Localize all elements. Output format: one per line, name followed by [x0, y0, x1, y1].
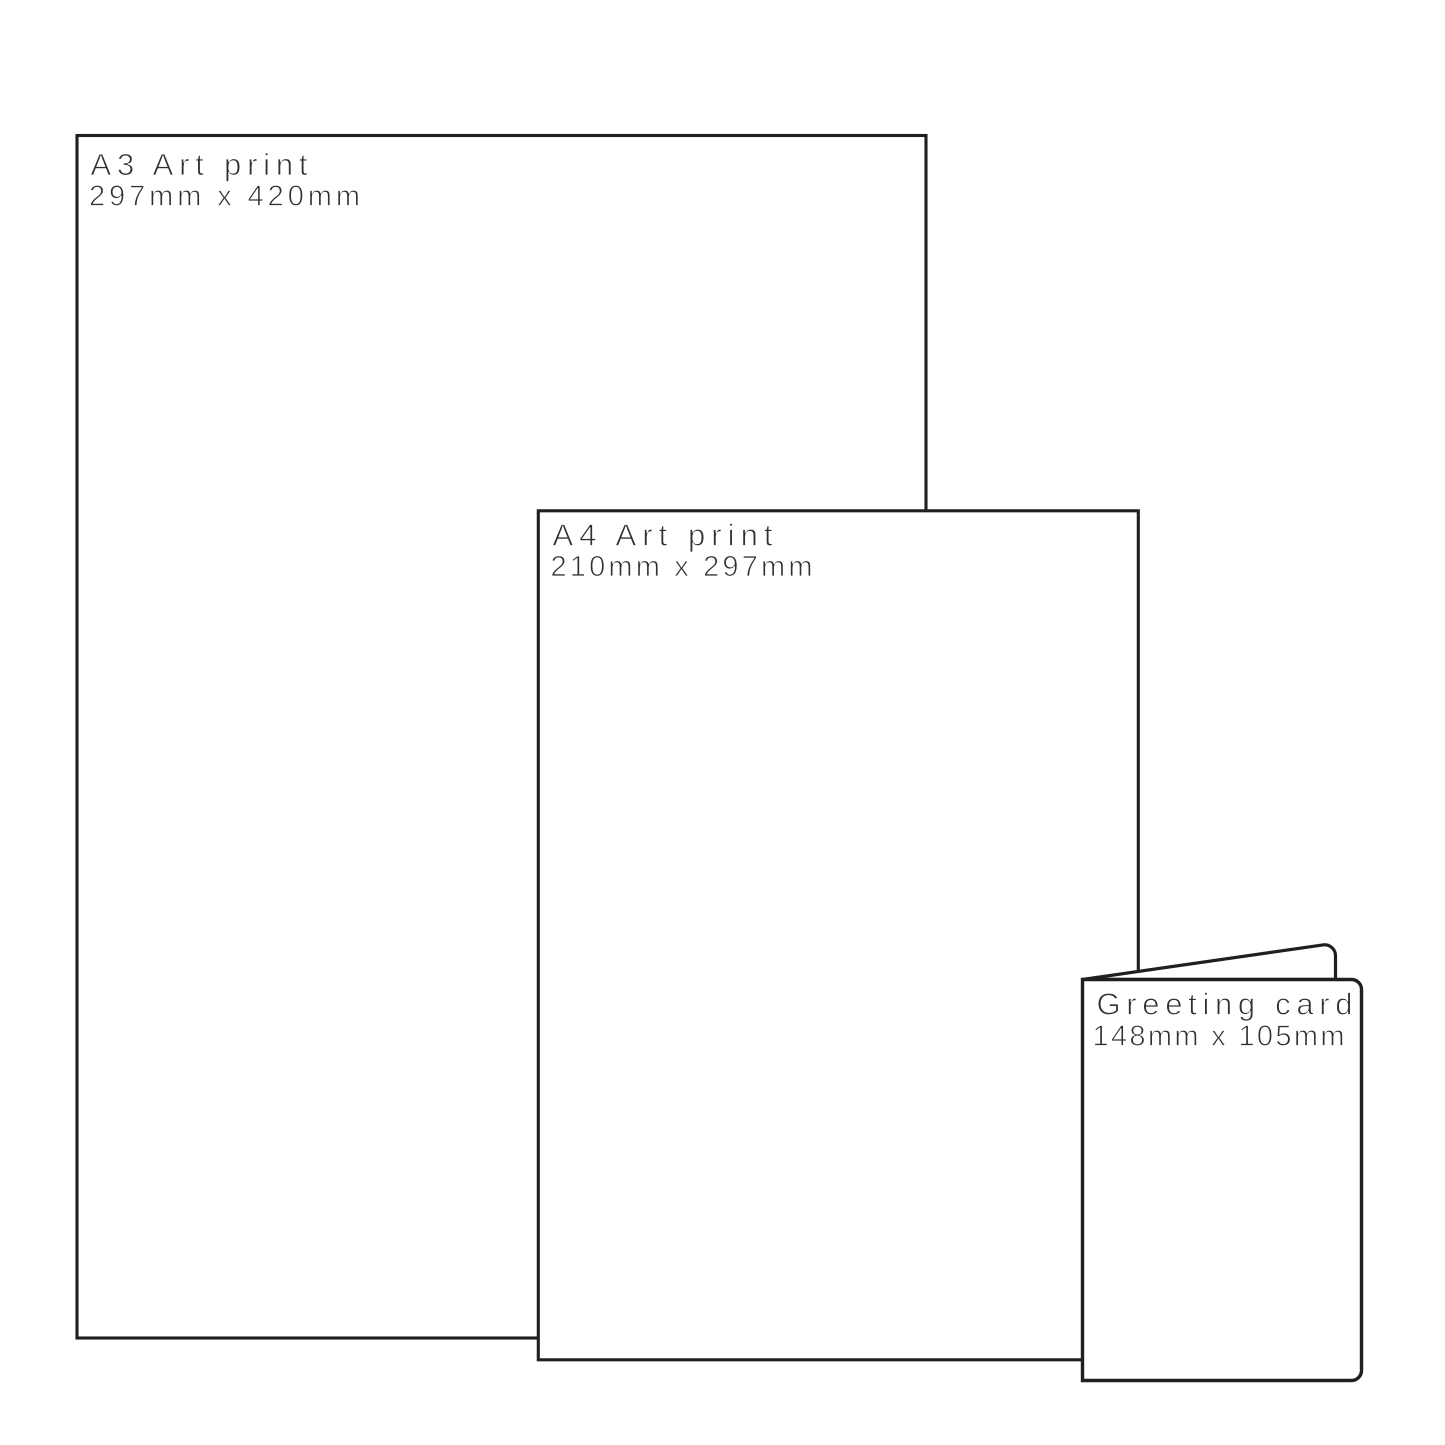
svg-text:A4 Art print: A4 Art print: [553, 518, 773, 553]
svg-text:A3 Art print: A3 Art print: [91, 147, 308, 182]
svg-text:297mm x 420mm: 297mm x 420mm: [89, 181, 360, 213]
svg-text:210mm x 297mm: 210mm x 297mm: [551, 551, 813, 583]
svg-text:148mm x 105mm: 148mm x 105mm: [1093, 1021, 1345, 1053]
